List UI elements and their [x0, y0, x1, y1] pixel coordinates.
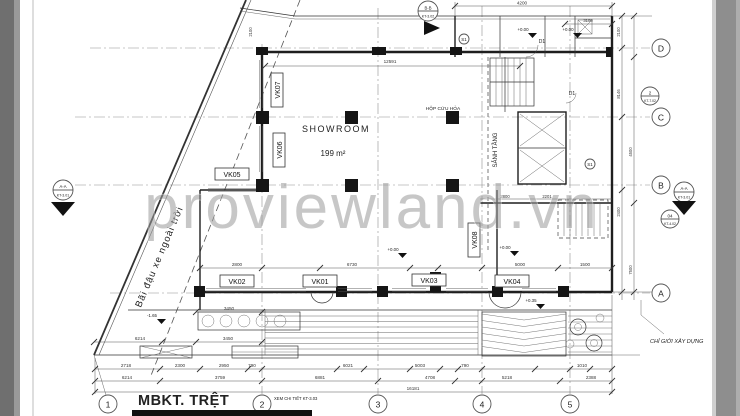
right-border-edge: [736, 0, 740, 416]
svg-text:VK01: VK01: [311, 279, 328, 286]
svg-text:VK02: VK02: [228, 279, 245, 286]
svg-text:-1.65: -1.65: [147, 313, 158, 318]
boundary-note-text: CHỈ GIỚI XÂY DỰNG: [650, 338, 704, 345]
firebox-label: HỘP CỨU HỎA: [426, 105, 461, 112]
dim-canopy: 2100: [248, 27, 253, 37]
dim-window-1: 6730: [347, 262, 358, 267]
watermark: proviewland.vn: [144, 173, 600, 242]
svg-text:04: 04: [667, 214, 673, 219]
svg-text:5: 5: [568, 400, 573, 410]
svg-text:A: A: [658, 289, 664, 299]
dim-window-2: 5000: [515, 262, 526, 267]
svg-text:+0.00: +0.00: [562, 27, 574, 32]
svg-text:VK03: VK03: [420, 278, 437, 285]
right-border-inner: [712, 0, 716, 416]
dim-row1-5: 5003: [415, 363, 426, 368]
svg-text:VK04: VK04: [503, 279, 520, 286]
svg-text:+0.00: +0.00: [387, 247, 399, 252]
grid-col-4: 4: [473, 395, 491, 413]
tag-vk01: VK01: [303, 275, 337, 287]
svg-text:A-A: A-A: [681, 186, 688, 191]
svg-text:+0.00: +0.00: [517, 27, 529, 32]
svg-text:C: C: [658, 113, 664, 123]
svg-text:S1: S1: [587, 162, 593, 167]
dim-row2-5: 2388: [586, 375, 597, 380]
dim-row2-3: 4708: [425, 375, 436, 380]
see-detail-note: XEM CHI TIẾT KT-3.03: [274, 396, 318, 401]
left-border-strip: [0, 0, 14, 416]
svg-text:A-A: A-A: [60, 184, 67, 189]
svg-text:KT-3.01: KT-3.01: [57, 194, 70, 198]
dim-row1-6: 790: [461, 363, 469, 368]
svg-text:S1: S1: [461, 37, 467, 42]
lobby-label: SẢNH TẦNG: [492, 132, 499, 167]
svg-text:+0.00: +0.00: [499, 245, 511, 250]
dim-row1-2: 2950: [219, 363, 230, 368]
grid-row-d: D: [652, 39, 670, 57]
dim-top-1: 3100: [583, 18, 593, 23]
tag-vk07: VK07: [271, 73, 283, 107]
dim-total: 16181: [407, 386, 420, 391]
tag-d1-a: D1: [539, 39, 546, 45]
dim-row2-1: 3759: [215, 375, 226, 380]
tag-vk03: VK03: [412, 274, 446, 286]
dim-window-0: 2800: [232, 262, 243, 267]
svg-text:KT-3.01: KT-3.01: [678, 196, 691, 200]
right-border-strip: [716, 0, 736, 416]
dim-row2-0: 6214: [122, 375, 133, 380]
detail-marker-04: 04 KT-4.02: [661, 210, 679, 228]
dim-row2-4: 5218: [502, 375, 513, 380]
svg-text:KT-4.02: KT-4.02: [664, 222, 676, 226]
dim-row1-7: 1010: [577, 363, 588, 368]
svg-text:+0.35: +0.35: [525, 298, 537, 303]
grid-col-1: 1: [99, 395, 117, 413]
grid-row-c: C: [652, 108, 670, 126]
svg-text:4: 4: [480, 400, 485, 410]
tag-vk04: VK04: [495, 275, 529, 287]
title-text: MBKT. TRỆT: [138, 391, 229, 409]
tag-s1-b: S1: [585, 159, 595, 169]
dim-right-2: 4500: [628, 147, 633, 157]
grid-col-3: 3: [369, 395, 387, 413]
svg-text:D: D: [658, 44, 664, 54]
floor-plan-viewer: 2718 2300 2950 790 6021 5003 790 1010 62…: [0, 0, 740, 416]
dim-right-3: 2400: [616, 207, 621, 217]
tag-s1-a: S1: [459, 34, 469, 44]
svg-text:B: B: [658, 181, 664, 191]
showroom-area-label: 199 m²: [321, 149, 346, 158]
svg-text:VK07: VK07: [275, 81, 282, 98]
svg-text:1: 1: [106, 400, 111, 410]
dim-right-4: 7500: [628, 265, 633, 275]
svg-text:KT-7.02: KT-7.02: [644, 99, 656, 103]
detail-marker-2: 2 KT-7.02: [641, 87, 659, 105]
svg-text:3: 3: [376, 400, 381, 410]
dim-top-0: 4200: [517, 1, 528, 6]
svg-text:VK06: VK06: [277, 141, 284, 158]
grid-row-a: A: [652, 284, 670, 302]
dim-row1-4: 6021: [343, 363, 354, 368]
svg-text:2: 2: [260, 400, 265, 410]
dim-left-0: 6214: [135, 336, 146, 341]
grid-col-5: 5: [561, 395, 579, 413]
svg-text:KT-3.02: KT-3.02: [422, 15, 435, 19]
grid-row-b: B: [652, 176, 670, 194]
tag-vk02: VK02: [220, 275, 254, 287]
floor-plan-drawing: 2718 2300 2950 790 6021 5003 790 1010 62…: [0, 0, 740, 416]
dim-row1-1: 2300: [175, 363, 186, 368]
tag-d1-b: D1: [569, 91, 576, 97]
dim-showroom-width: 12591: [384, 59, 397, 64]
dim-right-1: 8146: [616, 89, 621, 99]
dim-right-0: 2100: [616, 27, 621, 37]
tag-vk06: VK06: [273, 133, 285, 167]
title-underline: [132, 410, 312, 416]
dim-row1-3: 790: [248, 363, 256, 368]
dim-window-3: 1500: [580, 262, 591, 267]
dim-row2-2: 6881: [315, 375, 326, 380]
left-border-inner: [14, 0, 20, 416]
svg-text:B-B: B-B: [425, 6, 432, 11]
showroom-label: SHOWROOM: [302, 124, 370, 134]
dim-left-1: 3450: [223, 336, 234, 341]
dim-row1-0: 2718: [121, 363, 132, 368]
dim-left-2: 3450: [224, 306, 235, 311]
